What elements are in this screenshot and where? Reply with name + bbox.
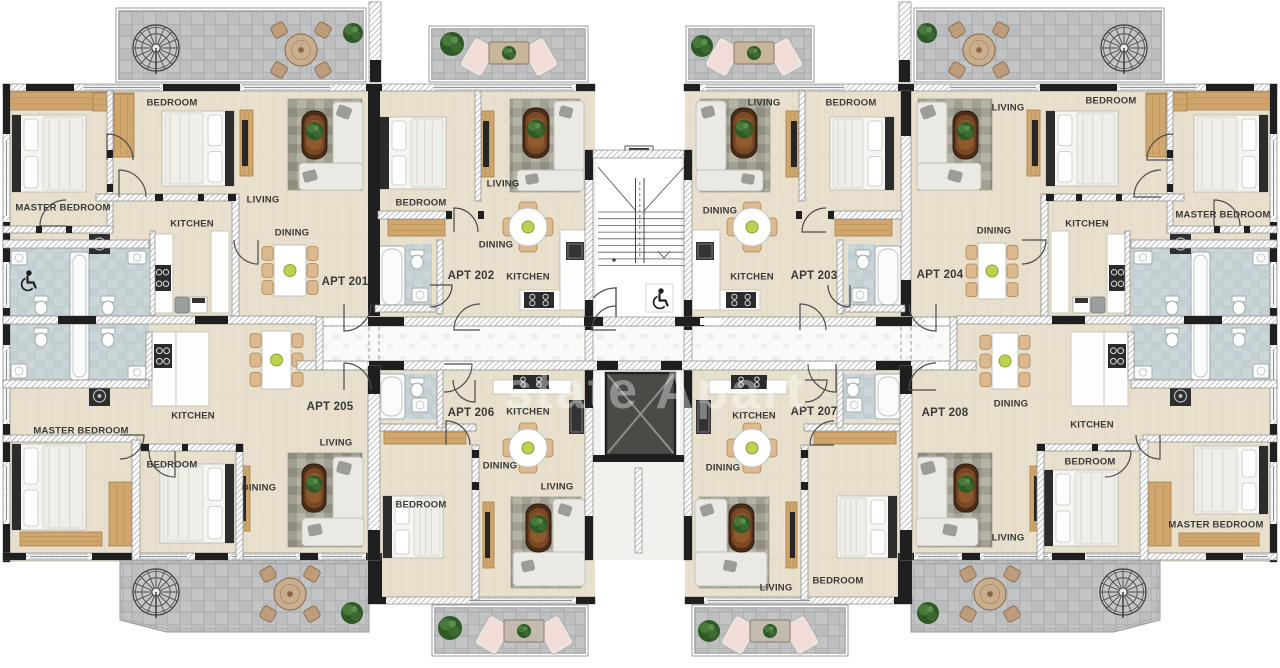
svg-text:KITCHEN: KITCHEN [171,410,215,421]
svg-text:DINING: DINING [994,398,1028,409]
svg-text:BEDROOM: BEDROOM [146,459,197,470]
svg-text:APT 201: APT 201 [322,276,369,288]
svg-text:APT 204: APT 204 [917,269,964,281]
svg-text:DINING: DINING [483,460,517,471]
svg-text:DINING: DINING [479,239,513,250]
svg-text:DINING: DINING [275,227,309,238]
svg-text:LIVING: LIVING [541,481,574,492]
svg-text:LIVING: LIVING [487,178,520,189]
svg-text:APT 206: APT 206 [448,407,495,419]
svg-text:BEDROOM: BEDROOM [395,499,446,510]
svg-text:MASTER BEDROOM: MASTER BEDROOM [1175,209,1270,220]
svg-text:LIVING: LIVING [992,532,1025,543]
svg-text:KITCHEN: KITCHEN [1065,218,1109,229]
svg-text:DINING: DINING [242,482,276,493]
svg-text:APT 203: APT 203 [791,270,838,282]
svg-text:APT 202: APT 202 [448,270,495,282]
svg-text:BEDROOM: BEDROOM [146,97,197,108]
svg-text:KITCHEN: KITCHEN [506,271,550,282]
svg-text:DINING: DINING [977,225,1011,236]
svg-text:DINING: DINING [706,462,740,473]
svg-text:LIVING: LIVING [760,582,793,593]
svg-text:BEDROOM: BEDROOM [1064,456,1115,467]
svg-text:KITCHEN: KITCHEN [170,218,214,229]
svg-text:LIVING: LIVING [748,97,781,108]
svg-text:LIVING: LIVING [320,437,353,448]
svg-text:MASTER BEDROOM: MASTER BEDROOM [15,202,110,213]
svg-text:LIVING: LIVING [992,102,1025,113]
svg-text:LIVING: LIVING [247,194,280,205]
svg-text:state Apart: state Apart [504,362,807,420]
svg-text:BEDROOM: BEDROOM [1085,95,1136,106]
svg-text:KITCHEN: KITCHEN [1070,419,1114,430]
svg-text:DINING: DINING [703,205,737,216]
svg-text:MASTER BEDROOM: MASTER BEDROOM [1168,519,1263,530]
svg-text:BEDROOM: BEDROOM [395,197,446,208]
svg-text:BEDROOM: BEDROOM [825,97,876,108]
svg-text:APT 208: APT 208 [922,407,969,419]
svg-text:APT 205: APT 205 [307,401,354,413]
svg-text:MASTER BEDROOM: MASTER BEDROOM [33,425,128,436]
svg-text:BEDROOM: BEDROOM [812,575,863,586]
svg-text:KITCHEN: KITCHEN [730,271,774,282]
